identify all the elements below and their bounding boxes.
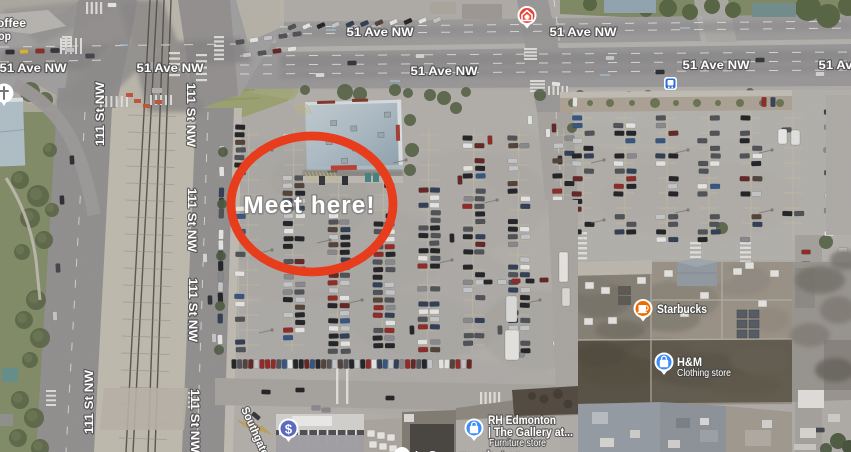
svg-text:111 St NW: 111 St NW bbox=[185, 188, 199, 253]
svg-text:51 Ave NW: 51 Ave NW bbox=[0, 61, 67, 75]
svg-text:Coffee: Coffee bbox=[0, 16, 26, 30]
svg-text:111 St NW: 111 St NW bbox=[186, 278, 200, 343]
svg-text:111 St NW: 111 St NW bbox=[93, 81, 107, 146]
svg-text:111 St NW: 111 St NW bbox=[188, 389, 202, 452]
svg-text:Furniture store: Furniture store bbox=[489, 438, 546, 449]
svg-text:Shop: Shop bbox=[0, 29, 11, 43]
svg-text:51 Ave NW: 51 Ave NW bbox=[683, 58, 751, 72]
svg-text:RH Edmonton: RH Edmonton bbox=[488, 415, 556, 427]
svg-text:111 St NW: 111 St NW bbox=[82, 369, 96, 434]
svg-text:51 Ave NW: 51 Ave NW bbox=[550, 25, 618, 39]
svg-text:111 St NW: 111 St NW bbox=[184, 83, 198, 148]
svg-text:$: $ bbox=[285, 422, 293, 437]
svg-text:51 Ave NW: 51 Ave NW bbox=[137, 61, 205, 75]
svg-text:Meet here!: Meet here! bbox=[244, 192, 376, 219]
svg-text:51 Ave NW: 51 Ave NW bbox=[819, 58, 851, 72]
svg-text:51 Ave NW: 51 Ave NW bbox=[347, 25, 415, 39]
svg-text:51 Ave NW: 51 Ave NW bbox=[411, 64, 479, 78]
svg-text:Clothing store: Clothing store bbox=[677, 368, 731, 379]
svg-text:Starbucks: Starbucks bbox=[657, 304, 707, 316]
